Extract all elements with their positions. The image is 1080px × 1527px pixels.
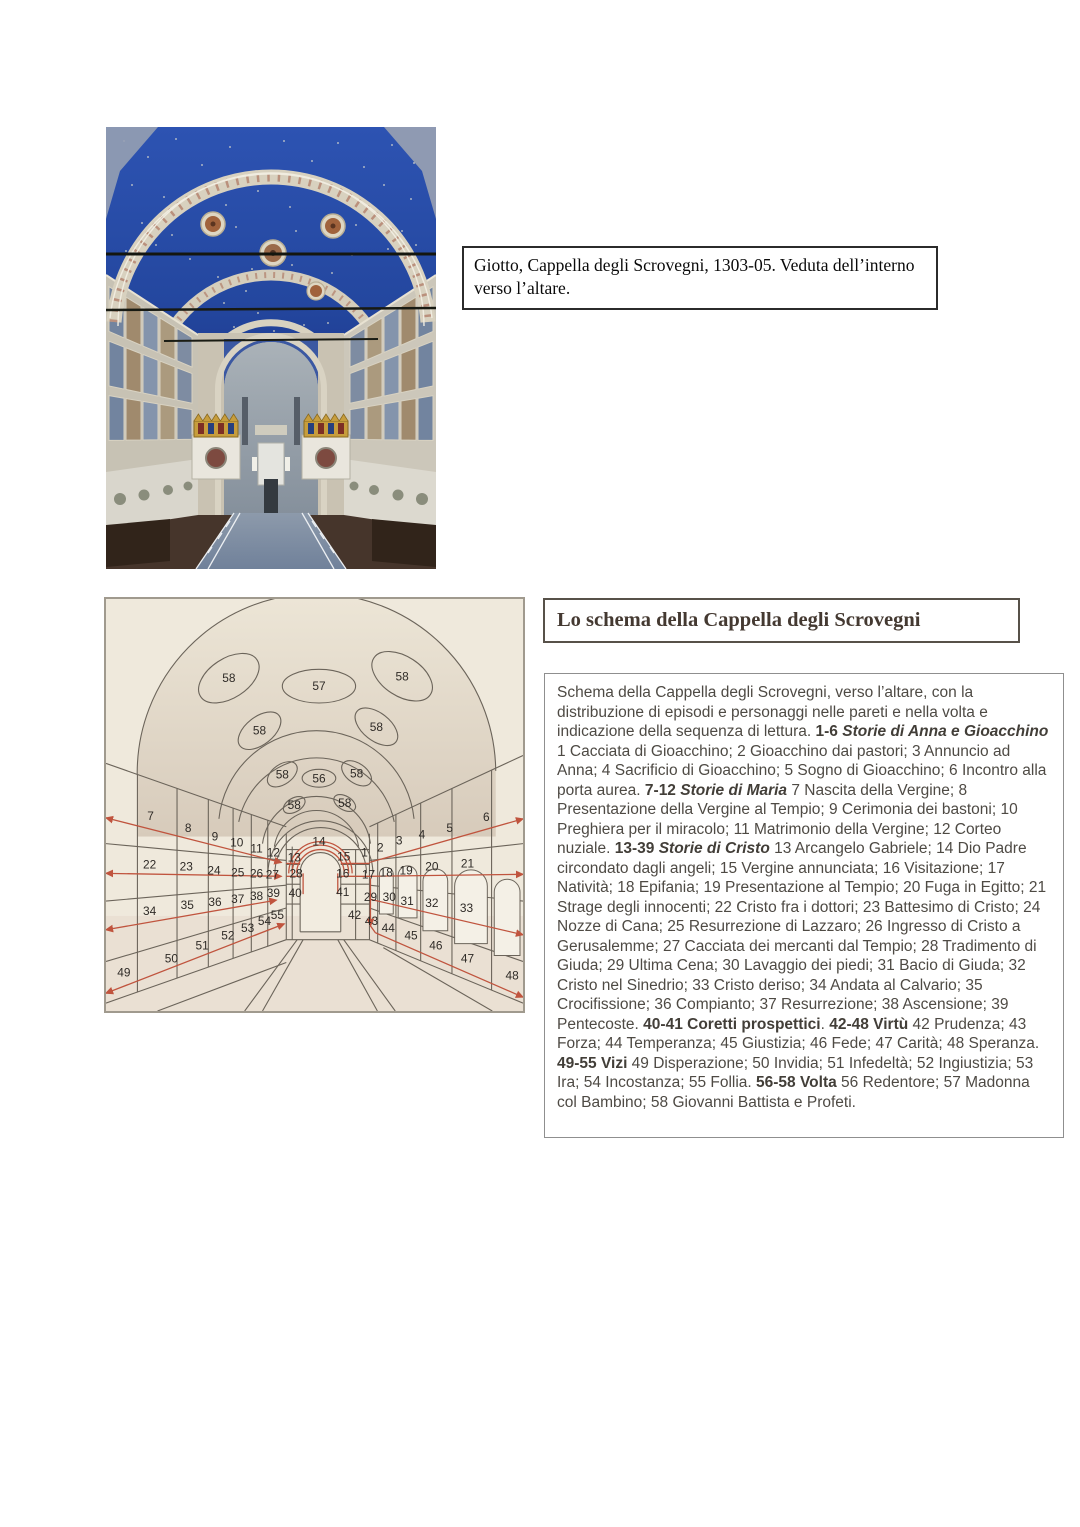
star-dot (229, 146, 231, 148)
schema-title: Lo schema della Cappella degli Scrovegni (557, 609, 921, 632)
vault-number-label: 58 (338, 796, 352, 810)
vault-number-label: 57 (312, 679, 325, 693)
wall-number-label: 54 (258, 914, 272, 928)
star-dot (233, 326, 235, 328)
wall-number-label: 46 (429, 939, 443, 953)
star-dot (295, 230, 297, 232)
description-segment: Storie di Anna e Gioacchino (842, 723, 1048, 740)
vault-number-label: 56 (312, 771, 326, 785)
chapel-schema-drawing: 5857585858585658585878910111222232425262… (106, 599, 523, 1011)
star-dot (257, 312, 259, 314)
wall-number-label: 51 (195, 939, 209, 953)
wall-number-label: 36 (208, 895, 222, 909)
description-segment: 56-58 Volta (756, 1074, 837, 1091)
description-segment: 1-6 (816, 723, 843, 740)
star-dot (163, 196, 165, 198)
star-dot (410, 198, 412, 200)
fresco-panel (401, 399, 416, 441)
apse-window-left (242, 397, 248, 445)
star-dot (331, 272, 333, 274)
schema-description: Schema della Cappella degli Scrovegni, v… (557, 683, 1051, 1112)
description-segment: . (821, 1016, 830, 1033)
star-dot (131, 184, 133, 186)
vault-number-label: 58 (288, 798, 302, 812)
wall-number-label: 24 (207, 863, 221, 877)
star-dot (289, 206, 291, 208)
wall-number-label: 31 (400, 894, 414, 908)
wall-number-label: 38 (250, 889, 264, 903)
altar-canopy (255, 425, 287, 435)
vault-number-label: 58 (276, 767, 290, 781)
fresco-panel (143, 401, 158, 440)
fresco-panel (160, 361, 175, 400)
wall-number-label: 11 (250, 842, 263, 856)
star-dot (273, 330, 275, 332)
wall-number-label: 52 (221, 929, 234, 943)
wall-number-label: 48 (505, 968, 519, 982)
wall-number-label: 41 (336, 885, 350, 899)
wall-number-label: 40 (289, 886, 303, 900)
star-dot (217, 276, 219, 278)
apse-doorway (264, 479, 278, 517)
wall-number-label: 14 (312, 835, 326, 849)
wall-number-label: 29 (364, 890, 378, 904)
star-dot (337, 142, 339, 144)
vault-number-label: 58 (350, 766, 364, 780)
wall-number-label: 1 (361, 846, 368, 860)
statue-right (285, 457, 290, 471)
star-dot (223, 302, 225, 304)
wall-number-label: 32 (425, 896, 438, 910)
page: { "caption_box": { "text": "Giotto, Capp… (0, 0, 1080, 1527)
wall-number-label: 21 (461, 856, 475, 870)
fresco-panel (418, 341, 433, 389)
wall-number-label: 7 (147, 809, 154, 823)
fresco-panel (126, 399, 141, 441)
fresco-panel (109, 341, 124, 389)
star-dot (363, 166, 365, 168)
wall-number-label: 49 (117, 965, 131, 979)
photo-caption-text: Giotto, Cappella degli Scrovegni, 1303-0… (474, 254, 926, 300)
wall-number-label: 12 (267, 846, 280, 860)
wall-number-label: 26 (250, 866, 264, 880)
star-dot (171, 234, 173, 236)
fresco-panel (177, 368, 192, 403)
star-dot (387, 248, 389, 250)
star-dot (147, 156, 149, 158)
fresco-panel (143, 354, 158, 396)
fresco-panel (367, 404, 382, 439)
right-bench (372, 519, 436, 567)
star-dot (355, 224, 357, 226)
wall-number-label: 55 (271, 908, 285, 922)
fresco-panel (401, 348, 416, 393)
wall-number-label: 37 (231, 892, 244, 906)
fresco-panel (367, 361, 382, 400)
star-dot (415, 244, 417, 246)
wall-number-label: 16 (336, 866, 350, 880)
statue-left (252, 457, 257, 471)
star-dot (225, 204, 227, 206)
star-dot (327, 322, 329, 324)
description-segment: 13-39 (615, 840, 659, 857)
wall-number-label: 45 (404, 929, 418, 943)
wall-number-label: 25 (231, 865, 245, 879)
fresco-panel (384, 401, 399, 440)
wall-number-label: 43 (365, 914, 379, 928)
vault-number-label: 58 (253, 724, 267, 738)
wall-number-label: 13 (288, 850, 302, 864)
wall-number-label: 5 (446, 821, 453, 835)
wall-number-label: 3 (396, 834, 403, 848)
left-bench (106, 519, 170, 567)
wall-number-label: 27 (266, 867, 279, 881)
description-segment: 40-41 Coretti prospettici (643, 1016, 820, 1033)
star-dot (401, 230, 403, 232)
description-segment: Storie di Cristo (659, 840, 770, 857)
fresco-panel (418, 396, 433, 441)
wall-number-label: 8 (185, 821, 192, 835)
wall-number-label: 2 (377, 841, 384, 855)
description-segment: 42-48 Virtù (829, 1016, 908, 1033)
fresco-panel (350, 407, 365, 439)
wall-number-label: 17 (362, 867, 375, 881)
wall-number-label: 50 (165, 952, 179, 966)
wall-number-label: 15 (337, 850, 351, 864)
wall-number-label: 35 (181, 898, 195, 912)
fresco-panel (177, 407, 192, 439)
fresco-panel (384, 354, 399, 396)
vault-number-label: 58 (370, 720, 384, 734)
wall-number-label: 30 (383, 890, 397, 904)
star-dot (391, 144, 393, 146)
side-altar-left (192, 414, 240, 479)
wall-number-label: 39 (267, 886, 281, 900)
star-dot (155, 244, 157, 246)
schema-title-box: Lo schema della Cappella degli Scrovegni (543, 598, 1020, 643)
star-dot (291, 264, 293, 266)
fresco-panel (350, 368, 365, 403)
star-dot (257, 190, 259, 192)
star-dot (251, 268, 253, 270)
star-dot (311, 160, 313, 162)
star-dot (283, 140, 285, 142)
wall-number-label: 18 (380, 865, 394, 879)
chapel-schema-diagram: 5857585858585658585878910111222232425262… (104, 597, 525, 1013)
wall-number-label: 22 (143, 857, 156, 871)
description-segment: Storie di Maria (680, 782, 787, 799)
schema-description-box: Schema della Cappella degli Scrovegni, v… (544, 673, 1064, 1138)
chapel-photo (106, 127, 436, 569)
description-segment: 7-12 (645, 782, 680, 799)
vault-number-label: 58 (222, 671, 236, 685)
fresco-panel (160, 404, 175, 439)
wall-number-label: 34 (143, 904, 157, 918)
star-dot (125, 250, 127, 252)
star-dot (383, 184, 385, 186)
wall-number-label: 6 (483, 810, 490, 824)
description-segment: 13 Arcangelo Gabriele; 14 Dio Padre circ… (557, 840, 1046, 1033)
wall-number-label: 20 (425, 859, 439, 873)
wall-number-label: 33 (460, 901, 474, 915)
star-dot (235, 226, 237, 228)
wall-number-label: 28 (290, 866, 304, 880)
star-dot (141, 222, 143, 224)
chapel-photo-image (106, 127, 436, 569)
wall-number-label: 9 (212, 830, 219, 844)
photo-caption-box: Giotto, Cappella degli Scrovegni, 1303-0… (462, 246, 938, 310)
star-dot (189, 258, 191, 260)
wall-number-label: 4 (419, 828, 426, 842)
vault-number-label: 58 (396, 669, 410, 683)
star-dot (201, 164, 203, 166)
side-altar-right (302, 414, 350, 479)
wall-number-label: 19 (400, 863, 414, 877)
fresco-panel (126, 348, 141, 393)
wall-number-label: 44 (382, 921, 396, 935)
wall-number-label: 53 (241, 921, 255, 935)
apse-window-right (294, 397, 300, 445)
wall-number-label: 47 (461, 952, 474, 966)
description-segment: 49-55 Vizi (557, 1055, 627, 1072)
star-dot (175, 138, 177, 140)
wall-number-label: 10 (230, 836, 244, 850)
altar (258, 443, 284, 485)
star-dot (245, 290, 247, 292)
star-dot (303, 324, 305, 326)
fresco-panel (109, 396, 124, 441)
wall-number-label: 23 (180, 859, 194, 873)
wall-number-label: 42 (348, 908, 361, 922)
